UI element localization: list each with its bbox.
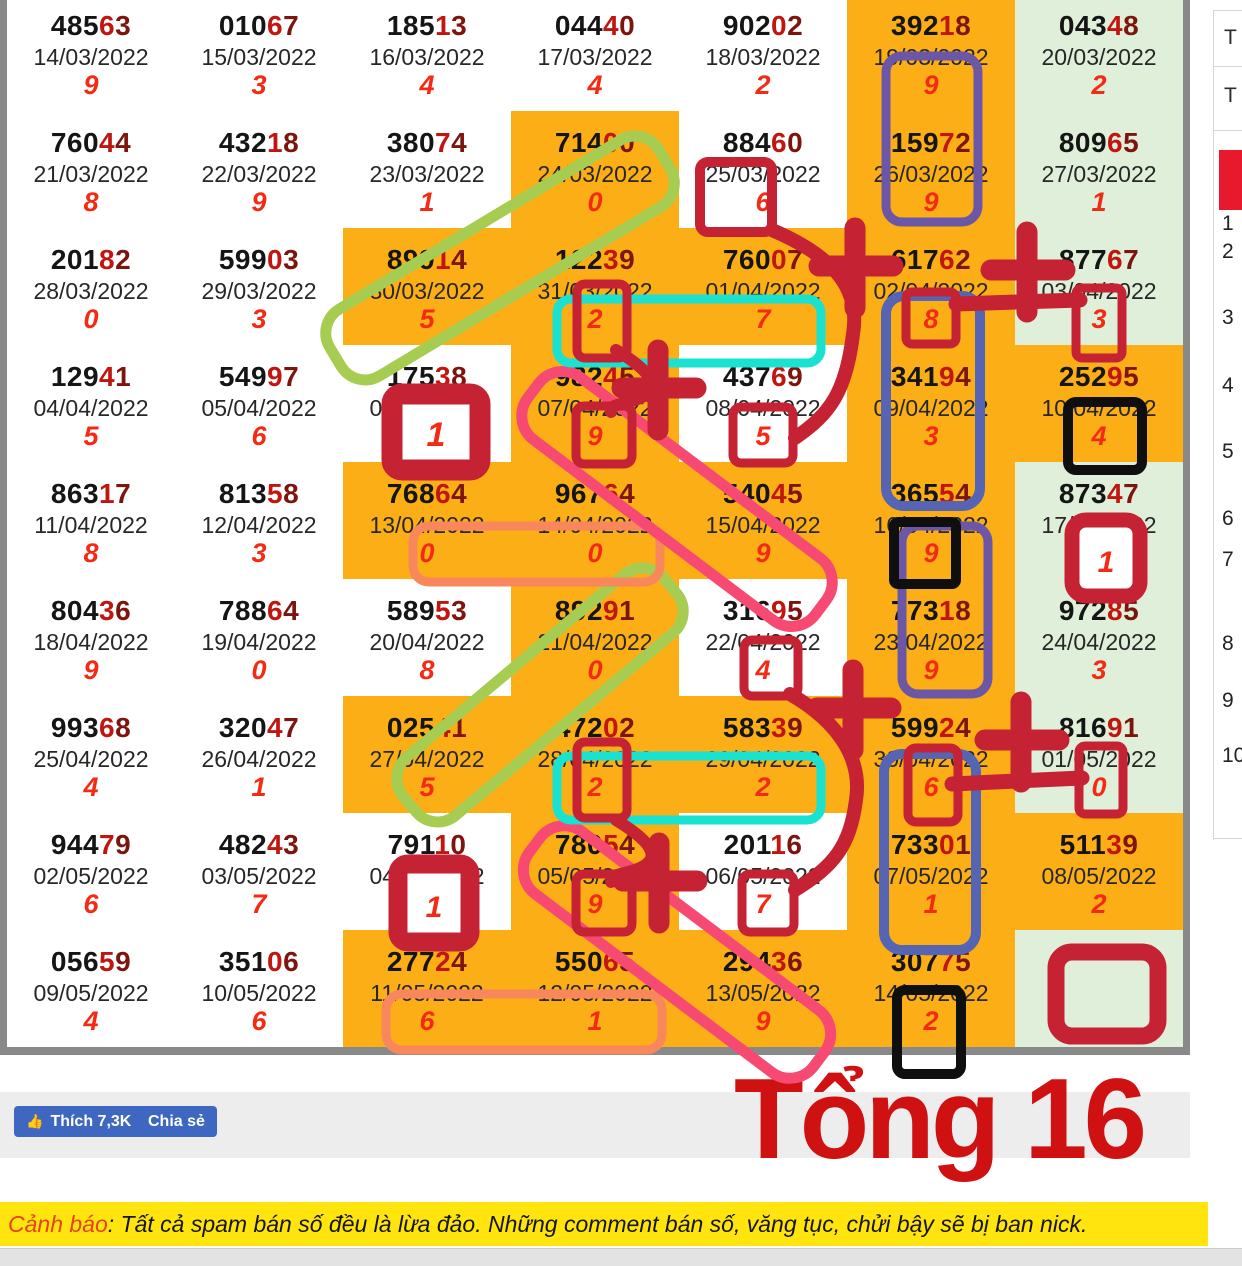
cell-number: 81358	[175, 478, 343, 510]
panel-row-number[interactable]: 8	[1222, 632, 1242, 656]
cell-number: 47202	[511, 712, 679, 744]
cell-date: 16/03/2022	[343, 44, 511, 71]
cell-number: 55065	[511, 946, 679, 978]
panel-link-t1[interactable]: T	[1224, 26, 1237, 50]
cell-sum-digit: 9	[7, 655, 175, 686]
lottery-cell: 8734717/04/20221	[1015, 462, 1184, 580]
lottery-cell: 7911004/05/20221	[343, 813, 512, 931]
page: 4856314/03/202290106715/03/202231851316/…	[0, 0, 1242, 1266]
cell-number: 15972	[847, 127, 1015, 159]
cell-number: 01067	[175, 10, 343, 42]
cell-number: 12239	[511, 244, 679, 276]
cell-number: 43769	[679, 361, 847, 393]
lottery-cell: 0565909/05/20224	[7, 930, 176, 1048]
panel-row-number[interactable]: 4	[1222, 374, 1242, 398]
cell-sum-digit: 3	[1015, 655, 1183, 686]
cell-date: 31/03/2022	[511, 278, 679, 305]
facebook-share-button[interactable]: Chia sẻ	[136, 1106, 217, 1137]
cell-number: 34194	[847, 361, 1015, 393]
cell-sum-digit: 9	[679, 1006, 847, 1037]
cell-number: 77318	[847, 595, 1015, 627]
lottery-cell: 7140024/03/20220	[511, 111, 680, 229]
cell-sum-digit: 5	[343, 304, 511, 335]
cell-date: 15/04/2022	[679, 512, 847, 539]
cell-sum-digit: 5	[7, 421, 175, 452]
cell-sum-digit: 8	[7, 187, 175, 218]
cell-number: 98245	[511, 361, 679, 393]
cell-date: 09/05/2022	[7, 980, 175, 1007]
lottery-cell: 7686413/04/20220	[343, 462, 512, 580]
cell-date: 19/03/2022	[847, 44, 1015, 71]
lottery-cell	[1015, 930, 1184, 1048]
cell-sum-digit: 9	[175, 187, 343, 218]
cell-date: 27/04/2022	[343, 746, 511, 773]
cell-date: 11/05/2022	[343, 980, 511, 1007]
lottery-cell: 3510610/05/20226	[175, 930, 344, 1048]
cell-sum-digit: 9	[511, 889, 679, 920]
cell-date: 16/04/2022	[847, 512, 1015, 539]
cell-number: 86317	[7, 478, 175, 510]
lottery-cell: 7805405/05/20229	[511, 813, 680, 931]
cell-date: 14/05/2022	[847, 980, 1015, 1007]
cell-date: 12/04/2022	[175, 512, 343, 539]
lottery-cell: 2011606/05/20227	[679, 813, 848, 931]
thumbs-up-icon: 👍	[26, 1113, 43, 1130]
cell-number: 87767	[1015, 244, 1183, 276]
lottery-cell: 3077514/05/20222	[847, 930, 1016, 1048]
cell-number: 59903	[175, 244, 343, 276]
panel-row-number[interactable]: 7	[1222, 548, 1242, 572]
lottery-cell: 8169101/05/20220	[1015, 696, 1184, 814]
cell-date: 09/04/2022	[847, 395, 1015, 422]
lottery-cell: 5990329/03/20223	[175, 228, 344, 346]
cell-number: 39218	[847, 10, 1015, 42]
cell-sum-digit: 1	[1015, 187, 1183, 218]
cell-sum-digit: 3	[847, 421, 1015, 452]
cell-date: 14/04/2022	[511, 512, 679, 539]
cell-date: 15/03/2022	[175, 44, 343, 71]
panel-row-number[interactable]: 2	[1222, 240, 1242, 264]
cell-date: 18/03/2022	[679, 44, 847, 71]
cell-date: 12/05/2022	[511, 980, 679, 1007]
lottery-cell: 2529510/04/20224	[1015, 345, 1184, 463]
cell-date: 02/04/2022	[847, 278, 1015, 305]
cell-sum-digit: 0	[511, 187, 679, 218]
cell-date: 17/03/2022	[511, 44, 679, 71]
cell-number: 76007	[679, 244, 847, 276]
cell-date: 21/04/2022	[511, 629, 679, 656]
cell-sum-digit: 4	[7, 772, 175, 803]
cell-sum-digit: 4	[7, 1006, 175, 1037]
cell-number: 20116	[679, 829, 847, 861]
cell-date: 05/05/2022	[511, 863, 679, 890]
cell-number: 02541	[343, 712, 511, 744]
cell-number: 05659	[7, 946, 175, 978]
lottery-cell: 5992430/04/20226	[847, 696, 1016, 814]
cell-sum-digit: 2	[511, 772, 679, 803]
cell-date: 18/04/2022	[7, 629, 175, 656]
lottery-cell: 4856314/03/20229	[7, 0, 176, 112]
lottery-cell: 7600701/04/20227	[679, 228, 848, 346]
lottery-cell: 9020218/03/20222	[679, 0, 848, 112]
panel-red-block	[1219, 150, 1242, 210]
cell-sum-digit: 6	[679, 187, 847, 218]
panel-divider	[1213, 130, 1242, 131]
cell-sum-digit: 6	[175, 1006, 343, 1037]
cell-date: 26/03/2022	[847, 161, 1015, 188]
cell-date: 27/03/2022	[1015, 161, 1183, 188]
cell-date: 07/04/2022	[511, 395, 679, 422]
cell-number: 61762	[847, 244, 1015, 276]
cell-sum-digit: 3	[175, 538, 343, 569]
cell-date: 13/05/2022	[679, 980, 847, 1007]
lottery-cell: 9447902/05/20226	[7, 813, 176, 931]
cell-date: 20/03/2022	[1015, 44, 1183, 71]
cell-number: 89914	[343, 244, 511, 276]
cell-date: 03/04/2022	[1015, 278, 1183, 305]
warning-label: Cảnh báo	[8, 1211, 108, 1238]
cell-number: 88460	[679, 127, 847, 159]
cell-number: 27724	[343, 946, 511, 978]
cell-number: 12941	[7, 361, 175, 393]
cell-number: 80436	[7, 595, 175, 627]
table-border-left	[0, 0, 7, 1055]
warning-text: : Tất cả spam bán số đều là lừa đảo. Nhữ…	[108, 1211, 1088, 1238]
cell-date: 01/04/2022	[679, 278, 847, 305]
panel-row-number[interactable]: 3	[1222, 306, 1242, 330]
lottery-cell: 4824303/05/20227	[175, 813, 344, 931]
panel-row-number[interactable]: 10	[1222, 744, 1242, 768]
lottery-cell: 9824507/04/20229	[511, 345, 680, 463]
lottery-cell: 2943613/05/20229	[679, 930, 848, 1048]
cell-number: 78864	[175, 595, 343, 627]
cell-sum-digit: 2	[847, 1006, 1015, 1037]
cell-number: 17538	[343, 361, 511, 393]
cell-number: 20182	[7, 244, 175, 276]
cell-date: 17/04/2022	[1015, 512, 1183, 539]
cell-date: 21/03/2022	[7, 161, 175, 188]
cell-date: 24/04/2022	[1015, 629, 1183, 656]
cell-date: 23/03/2022	[343, 161, 511, 188]
cell-sum-digit: 9	[847, 538, 1015, 569]
panel-border	[1213, 10, 1214, 840]
lottery-cell: 1753806/04/20221	[343, 345, 512, 463]
lottery-cell: 5506512/05/20221	[511, 930, 680, 1048]
like-button-label: Thích 7,3K	[50, 1113, 131, 1131]
cell-date: 30/04/2022	[847, 746, 1015, 773]
cell-sum-digit: 1	[175, 772, 343, 803]
cell-sum-digit: 0	[175, 655, 343, 686]
cell-date: 29/03/2022	[175, 278, 343, 305]
cell-number: 54045	[679, 478, 847, 510]
big-total-text: Tổng 16	[734, 1062, 1143, 1178]
cell-number: 99368	[7, 712, 175, 744]
cell-number: 38074	[343, 127, 511, 159]
lottery-cell: 0106715/03/20223	[175, 0, 344, 112]
cell-number: 76864	[343, 478, 511, 510]
cell-sum-digit: 9	[847, 187, 1015, 218]
cell-date: 25/04/2022	[7, 746, 175, 773]
table-border-bottom	[0, 1047, 1190, 1055]
lottery-cell: 9676414/04/20220	[511, 462, 680, 580]
cell-number: 81691	[1015, 712, 1183, 744]
facebook-like-button[interactable]: 👍 Thích 7,3K	[14, 1106, 143, 1137]
cell-sum-digit: 9	[679, 538, 847, 569]
cell-number: 80965	[1015, 127, 1183, 159]
cell-sum-digit: 0	[1015, 772, 1183, 803]
lottery-table: 4856314/03/202290106715/03/202231851316/…	[0, 0, 1190, 1055]
cell-date: 08/05/2022	[1015, 863, 1183, 890]
lottery-cell: 3169522/04/20224	[679, 579, 848, 697]
cell-number: 89291	[511, 595, 679, 627]
cell-sum-digit: 0	[343, 538, 511, 569]
lottery-cell: 9728524/04/20223	[1015, 579, 1184, 697]
cell-sum-digit: 1	[343, 889, 511, 920]
cell-sum-digit: 4	[343, 70, 511, 101]
cell-sum-digit: 2	[511, 304, 679, 335]
cell-sum-digit: 7	[175, 889, 343, 920]
lottery-cell: 5833929/04/20222	[679, 696, 848, 814]
lottery-cell: 5895320/04/20228	[343, 579, 512, 697]
cell-date: 06/05/2022	[679, 863, 847, 890]
lottery-cell: 8631711/04/20228	[7, 462, 176, 580]
cell-number: 04348	[1015, 10, 1183, 42]
cell-date: 22/04/2022	[679, 629, 847, 656]
cell-date: 28/03/2022	[7, 278, 175, 305]
lottery-cell: 6176202/04/20228	[847, 228, 1016, 346]
cell-sum-digit: 1	[343, 187, 511, 218]
lottery-cell: 4321822/03/20229	[175, 111, 344, 229]
lottery-cell: 8096527/03/20221	[1015, 111, 1184, 229]
share-button-label: Chia sẻ	[148, 1113, 205, 1131]
cell-sum-digit: 1	[1015, 538, 1183, 569]
lottery-cell: 5404515/04/20229	[679, 462, 848, 580]
lottery-cell: 0444017/03/20224	[511, 0, 680, 112]
cell-sum-digit: 9	[7, 70, 175, 101]
cell-number: 59924	[847, 712, 1015, 744]
cell-sum-digit: 4	[511, 70, 679, 101]
cell-date: 20/04/2022	[343, 629, 511, 656]
lottery-cell: 3807423/03/20221	[343, 111, 512, 229]
cell-sum-digit: 1	[511, 1006, 679, 1037]
lottery-cell: 1597226/03/20229	[847, 111, 1016, 229]
cell-number: 30775	[847, 946, 1015, 978]
cell-sum-digit: 0	[511, 655, 679, 686]
bottom-strip	[0, 1248, 1242, 1266]
cell-sum-digit: 2	[1015, 70, 1183, 101]
cell-sum-digit: 4	[1015, 421, 1183, 452]
lottery-cell: 7604421/03/20228	[7, 111, 176, 229]
cell-date: 01/05/2022	[1015, 746, 1183, 773]
cell-number: 43218	[175, 127, 343, 159]
cell-date: 30/03/2022	[343, 278, 511, 305]
cell-date: 28/04/2022	[511, 746, 679, 773]
lottery-cell: 3419409/04/20223	[847, 345, 1016, 463]
lottery-cell: 7886419/04/20220	[175, 579, 344, 697]
cell-sum-digit: 7	[679, 304, 847, 335]
cell-sum-digit: 5	[679, 421, 847, 452]
lottery-cell: 8776703/04/20223	[1015, 228, 1184, 346]
table-border-right	[1183, 0, 1190, 1055]
cell-date: 22/03/2022	[175, 161, 343, 188]
cell-number: 79110	[343, 829, 511, 861]
cell-sum-digit: 2	[1015, 889, 1183, 920]
cell-number: 25295	[1015, 361, 1183, 393]
cell-date: 19/04/2022	[175, 629, 343, 656]
cell-sum-digit: 3	[175, 304, 343, 335]
cell-number: 31695	[679, 595, 847, 627]
lottery-cell: 8043618/04/20229	[7, 579, 176, 697]
cell-sum-digit: 9	[847, 655, 1015, 686]
cell-sum-digit: 2	[679, 772, 847, 803]
cell-number: 18513	[343, 10, 511, 42]
lottery-cell: 7731823/04/20229	[847, 579, 1016, 697]
cell-date: 14/03/2022	[7, 44, 175, 71]
lottery-cell: 8135812/04/20223	[175, 462, 344, 580]
lottery-cell: 1294104/04/20225	[7, 345, 176, 463]
cell-number: 87347	[1015, 478, 1183, 510]
lottery-cell: 7330107/05/20221	[847, 813, 1016, 931]
panel-row-number[interactable]: 1	[1222, 212, 1242, 236]
cell-sum-digit: 6	[847, 772, 1015, 803]
cell-sum-digit: 6	[7, 889, 175, 920]
cell-number: 48563	[7, 10, 175, 42]
cell-sum-digit: 5	[343, 772, 511, 803]
panel-divider	[1213, 10, 1242, 11]
panel-row-number[interactable]: 6	[1222, 507, 1242, 531]
cell-date: 25/03/2022	[679, 161, 847, 188]
lottery-cell: 4376908/04/20225	[679, 345, 848, 463]
cell-number: 04440	[511, 10, 679, 42]
lottery-cell: 3655416/04/20229	[847, 462, 1016, 580]
cell-number: 51139	[1015, 829, 1183, 861]
lottery-cell: 2018228/03/20220	[7, 228, 176, 346]
cell-sum-digit: 3	[1015, 304, 1183, 335]
cell-date: 29/04/2022	[679, 746, 847, 773]
lottery-cell: 3921819/03/20229	[847, 0, 1016, 112]
lottery-cell: 8846025/03/20226	[679, 111, 848, 229]
cell-number: 58339	[679, 712, 847, 744]
panel-link-t2[interactable]: T	[1224, 84, 1237, 108]
cell-date: 03/05/2022	[175, 863, 343, 890]
lottery-cell: 8929121/04/20220	[511, 579, 680, 697]
cell-sum-digit: 8	[847, 304, 1015, 335]
cell-sum-digit: 9	[511, 421, 679, 452]
cell-number: 32047	[175, 712, 343, 744]
cell-number: 35106	[175, 946, 343, 978]
cell-sum-digit: 8	[343, 655, 511, 686]
cell-date: 02/05/2022	[7, 863, 175, 890]
cell-date: 11/04/2022	[7, 512, 175, 539]
cell-sum-digit: 7	[679, 889, 847, 920]
cell-date: 23/04/2022	[847, 629, 1015, 656]
cell-number: 29436	[679, 946, 847, 978]
lottery-cell: 2772411/05/20226	[343, 930, 512, 1048]
cell-date: 04/04/2022	[7, 395, 175, 422]
lottery-cell: 3204726/04/20221	[175, 696, 344, 814]
cell-sum-digit: 6	[175, 421, 343, 452]
lottery-cell: 1851316/03/20224	[343, 0, 512, 112]
lottery-cell: 9936825/04/20224	[7, 696, 176, 814]
cell-number: 96764	[511, 478, 679, 510]
lottery-cell: 0254127/04/20225	[343, 696, 512, 814]
cell-sum-digit: 0	[511, 538, 679, 569]
panel-row-number[interactable]: 9	[1222, 689, 1242, 713]
lottery-cell: 5499705/04/20226	[175, 345, 344, 463]
lottery-cell: 5113908/05/20222	[1015, 813, 1184, 931]
cell-number: 58953	[343, 595, 511, 627]
cell-number: 71400	[511, 127, 679, 159]
cell-sum-digit: 8	[7, 538, 175, 569]
cell-number: 48243	[175, 829, 343, 861]
warning-banner: Cảnh báo: Tất cả spam bán số đều là lừa …	[0, 1202, 1208, 1246]
cell-sum-digit: 3	[175, 70, 343, 101]
lottery-cell: 0434820/03/20222	[1015, 0, 1184, 112]
cell-sum-digit: 2	[679, 70, 847, 101]
cell-date: 24/03/2022	[511, 161, 679, 188]
cell-date: 06/04/2022	[343, 395, 511, 422]
cell-sum-digit: 0	[7, 304, 175, 335]
cell-date: 13/04/2022	[343, 512, 511, 539]
cell-number: 90202	[679, 10, 847, 42]
lottery-cell: 4720228/04/20222	[511, 696, 680, 814]
panel-divider	[1213, 66, 1242, 67]
cell-number: 94479	[7, 829, 175, 861]
cell-sum-digit: 9	[847, 70, 1015, 101]
cell-date: 10/05/2022	[175, 980, 343, 1007]
cell-number: 54997	[175, 361, 343, 393]
cell-number: 36554	[847, 478, 1015, 510]
lottery-cell: 8991430/03/20225	[343, 228, 512, 346]
cell-date: 07/05/2022	[847, 863, 1015, 890]
lottery-cell: 1223931/03/20222	[511, 228, 680, 346]
cell-date: 10/04/2022	[1015, 395, 1183, 422]
cell-number: 76044	[7, 127, 175, 159]
panel-divider	[1213, 838, 1242, 839]
panel-row-number[interactable]: 5	[1222, 440, 1242, 464]
cell-date: 04/05/2022	[343, 863, 511, 890]
cell-sum-digit: 1	[343, 421, 511, 452]
cell-date: 26/04/2022	[175, 746, 343, 773]
cell-number: 73301	[847, 829, 1015, 861]
cell-date: 08/04/2022	[679, 395, 847, 422]
cell-sum-digit: 4	[679, 655, 847, 686]
cell-date: 05/04/2022	[175, 395, 343, 422]
cell-number: 78054	[511, 829, 679, 861]
cell-number: 97285	[1015, 595, 1183, 627]
cell-sum-digit: 1	[847, 889, 1015, 920]
cell-sum-digit: 6	[343, 1006, 511, 1037]
